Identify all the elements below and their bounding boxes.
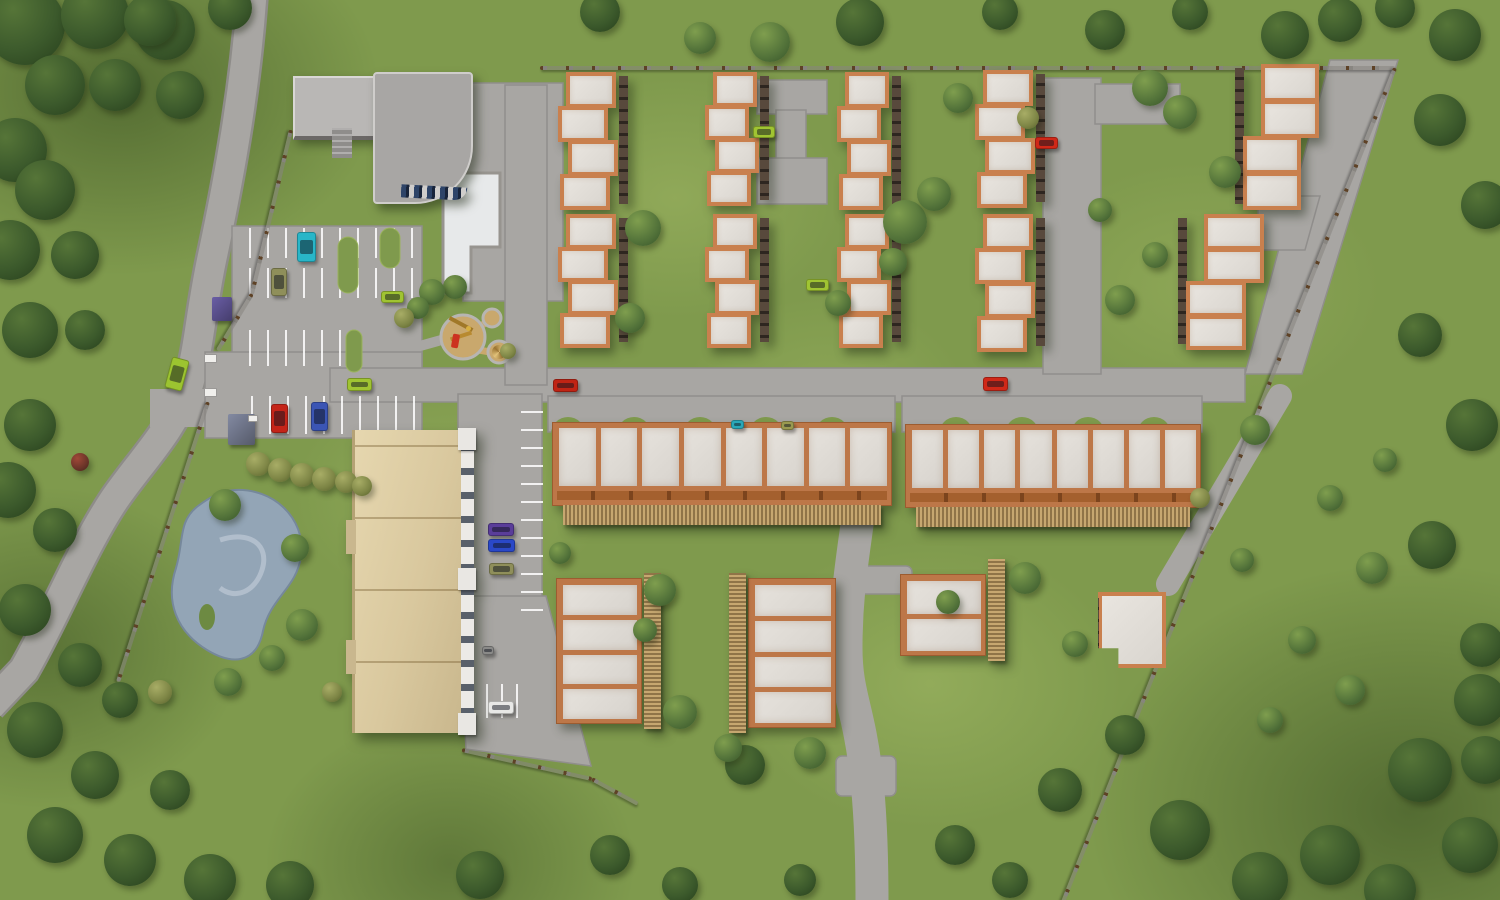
car-window <box>492 527 509 533</box>
car-window <box>557 383 574 389</box>
car <box>553 379 578 392</box>
car-window <box>274 411 285 425</box>
site-plan-stage <box>0 0 1500 900</box>
car-window <box>274 275 284 289</box>
car <box>806 279 829 291</box>
car-window <box>351 382 368 388</box>
car <box>311 402 328 431</box>
car <box>983 377 1008 391</box>
car-window <box>987 381 1004 387</box>
car-window <box>385 294 400 299</box>
car <box>381 291 404 303</box>
car <box>271 268 287 296</box>
cars-layer <box>0 0 1500 900</box>
car <box>297 232 316 262</box>
car <box>482 646 494 655</box>
car <box>1035 137 1058 149</box>
car-window <box>734 423 742 427</box>
car-window <box>492 705 509 711</box>
car <box>488 701 514 714</box>
car-window <box>484 649 491 653</box>
car <box>731 420 744 429</box>
car-window <box>1039 140 1054 145</box>
car-window <box>810 282 825 287</box>
car <box>781 421 794 430</box>
car-window <box>300 240 312 255</box>
car-window <box>757 129 771 134</box>
car <box>347 378 372 391</box>
car <box>488 539 515 552</box>
car <box>271 404 288 433</box>
car-window <box>493 543 511 549</box>
car <box>753 126 775 138</box>
car-window <box>493 566 510 571</box>
car <box>489 563 514 575</box>
car-window <box>314 409 325 423</box>
car <box>164 356 190 392</box>
car-window <box>784 424 792 428</box>
car-window <box>169 365 184 383</box>
car <box>488 523 514 536</box>
